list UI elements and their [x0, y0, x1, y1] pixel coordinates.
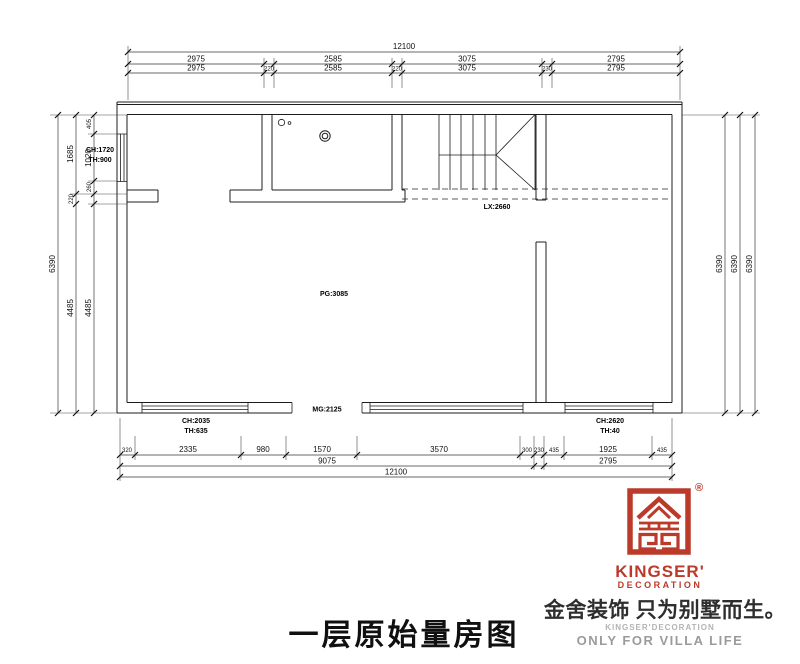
dim-label: 4485 — [84, 299, 93, 317]
dim-label: 3075 — [458, 55, 476, 64]
beam-height-label: LX:2660 — [484, 204, 511, 211]
pipe-symbol — [278, 119, 284, 125]
left-window — [117, 134, 127, 182]
dim-label: 1570 — [313, 445, 331, 454]
dim-label: 2335 — [179, 445, 197, 454]
dim-label: 435 — [657, 448, 668, 454]
window-br-height-label: CH:2620 — [596, 418, 624, 425]
dim-label: 2585 — [324, 64, 342, 73]
dim-label: 230 — [542, 67, 553, 73]
drain-symbol-inner — [322, 133, 328, 139]
dim-label: 3570 — [430, 445, 448, 454]
dim-label: 2975 — [187, 55, 205, 64]
dim-label: 2975 — [187, 64, 205, 73]
dim-label: 980 — [256, 445, 270, 454]
dimension-ticks — [55, 49, 758, 480]
dim-label: 2795 — [607, 64, 625, 73]
drain-symbol-outer — [320, 131, 330, 141]
registered-mark: ® — [695, 482, 703, 494]
logo-sub-en: KINGSER'DECORATION — [570, 623, 750, 632]
window-bl-sill-label: TH:635 — [184, 428, 207, 435]
dim-right: 6390 — [730, 255, 739, 273]
logo-brand-name: KINGSER' — [570, 562, 750, 582]
dim-label: 260 — [87, 181, 93, 192]
pipe-symbol-small — [288, 122, 291, 125]
dim-label: 220 — [392, 67, 403, 73]
bottom-windows — [142, 403, 653, 414]
dim-label: 2585 — [324, 55, 342, 64]
window-left-height-label: CH:1720 — [86, 147, 114, 154]
dim-label: 220 — [69, 193, 75, 204]
drawing-title: 一层原始量房图 — [254, 610, 554, 654]
dim-label: 9075 — [318, 457, 336, 466]
dim-label: 220 — [264, 67, 275, 73]
dim-bottom-total: 12100 — [385, 468, 408, 477]
dim-label: 320 — [122, 448, 133, 454]
dim-label: 3075 — [458, 64, 476, 73]
beam-dashed-line — [402, 189, 672, 199]
staircase — [439, 115, 535, 191]
logo-slogan-en: ONLY FOR VILLA LIFE — [550, 633, 770, 648]
window-bl-height-label: CH:2035 — [182, 418, 210, 425]
dim-label: 1685 — [66, 145, 75, 163]
outer-walls — [117, 102, 682, 413]
dim-label: 2795 — [599, 457, 617, 466]
extension-lines — [50, 46, 760, 481]
dim-top-total: 12100 — [393, 42, 416, 51]
kingser-logo-mark — [627, 488, 691, 556]
logo-spiral-left — [640, 535, 656, 550]
door-height-label: MG:2125 — [312, 407, 341, 414]
dim-label: 300 — [522, 448, 533, 454]
ceiling-height-label: PG:3085 — [320, 291, 348, 298]
dim-label: 4485 — [66, 299, 75, 317]
dim-label: 1925 — [599, 445, 617, 454]
logo-spiral-right — [662, 535, 678, 550]
interior-walls — [127, 115, 546, 403]
dim-label: 405 — [87, 118, 93, 129]
dim-right: 6390 — [745, 255, 754, 273]
logo-brick-strokes — [639, 523, 679, 529]
logo-tagline-cn: 金舍装饰 只为别墅而生。 — [540, 594, 790, 624]
window-left-sill-label: TH:900 — [88, 157, 111, 164]
dim-left-total: 6390 — [48, 255, 57, 273]
logo-division-name: DECORATION — [570, 580, 750, 590]
dim-label: 230 — [534, 448, 545, 454]
floor-plan-page: { "dims": { "top": { "total": "12100", "… — [0, 0, 800, 664]
dim-label: 2795 — [607, 55, 625, 64]
window-br-sill-label: TH:40 — [600, 428, 620, 435]
dim-right: 6390 — [715, 255, 724, 273]
dim-label: 435 — [549, 448, 560, 454]
